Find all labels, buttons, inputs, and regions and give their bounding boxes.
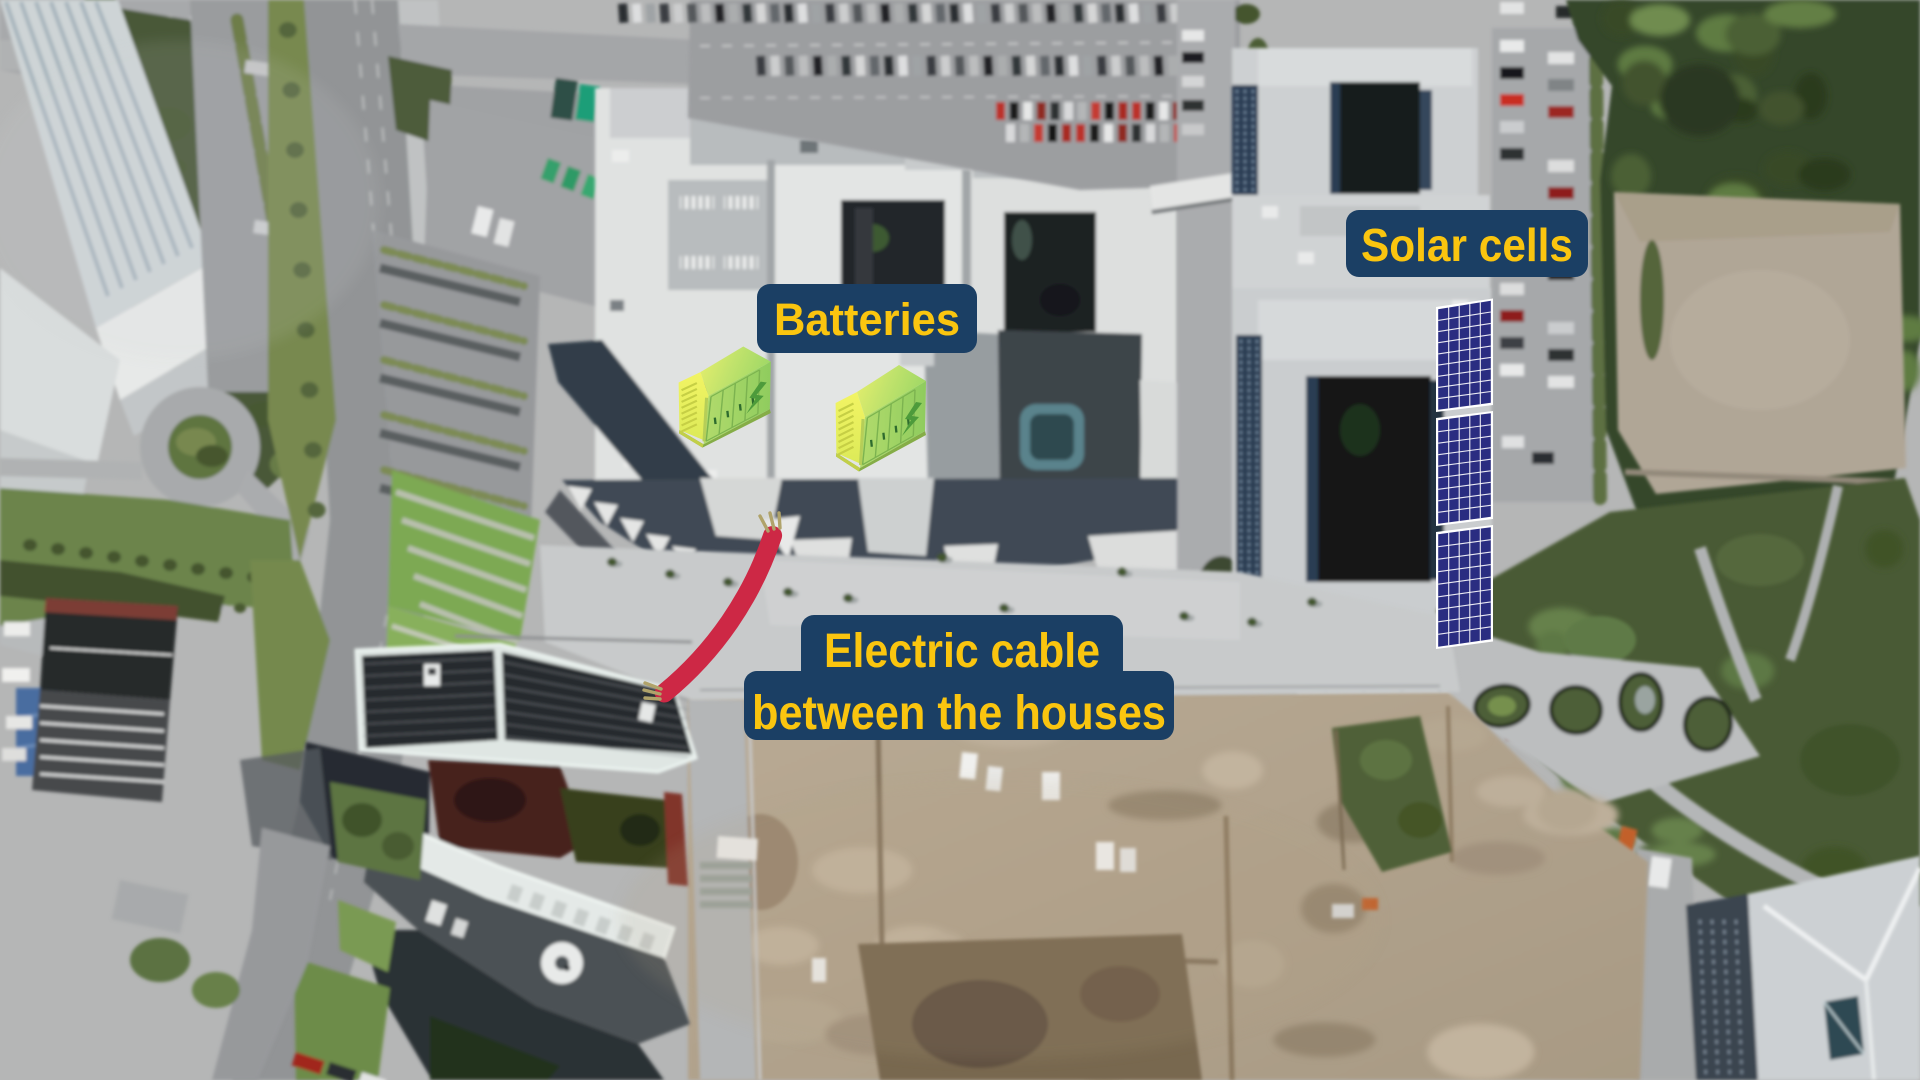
svg-text:Electric cable: Electric cable: [824, 625, 1100, 678]
svg-text:between the houses: between the houses: [752, 687, 1166, 740]
svg-text:Solar cells: Solar cells: [1361, 219, 1573, 271]
svg-text:Batteries: Batteries: [774, 294, 960, 345]
